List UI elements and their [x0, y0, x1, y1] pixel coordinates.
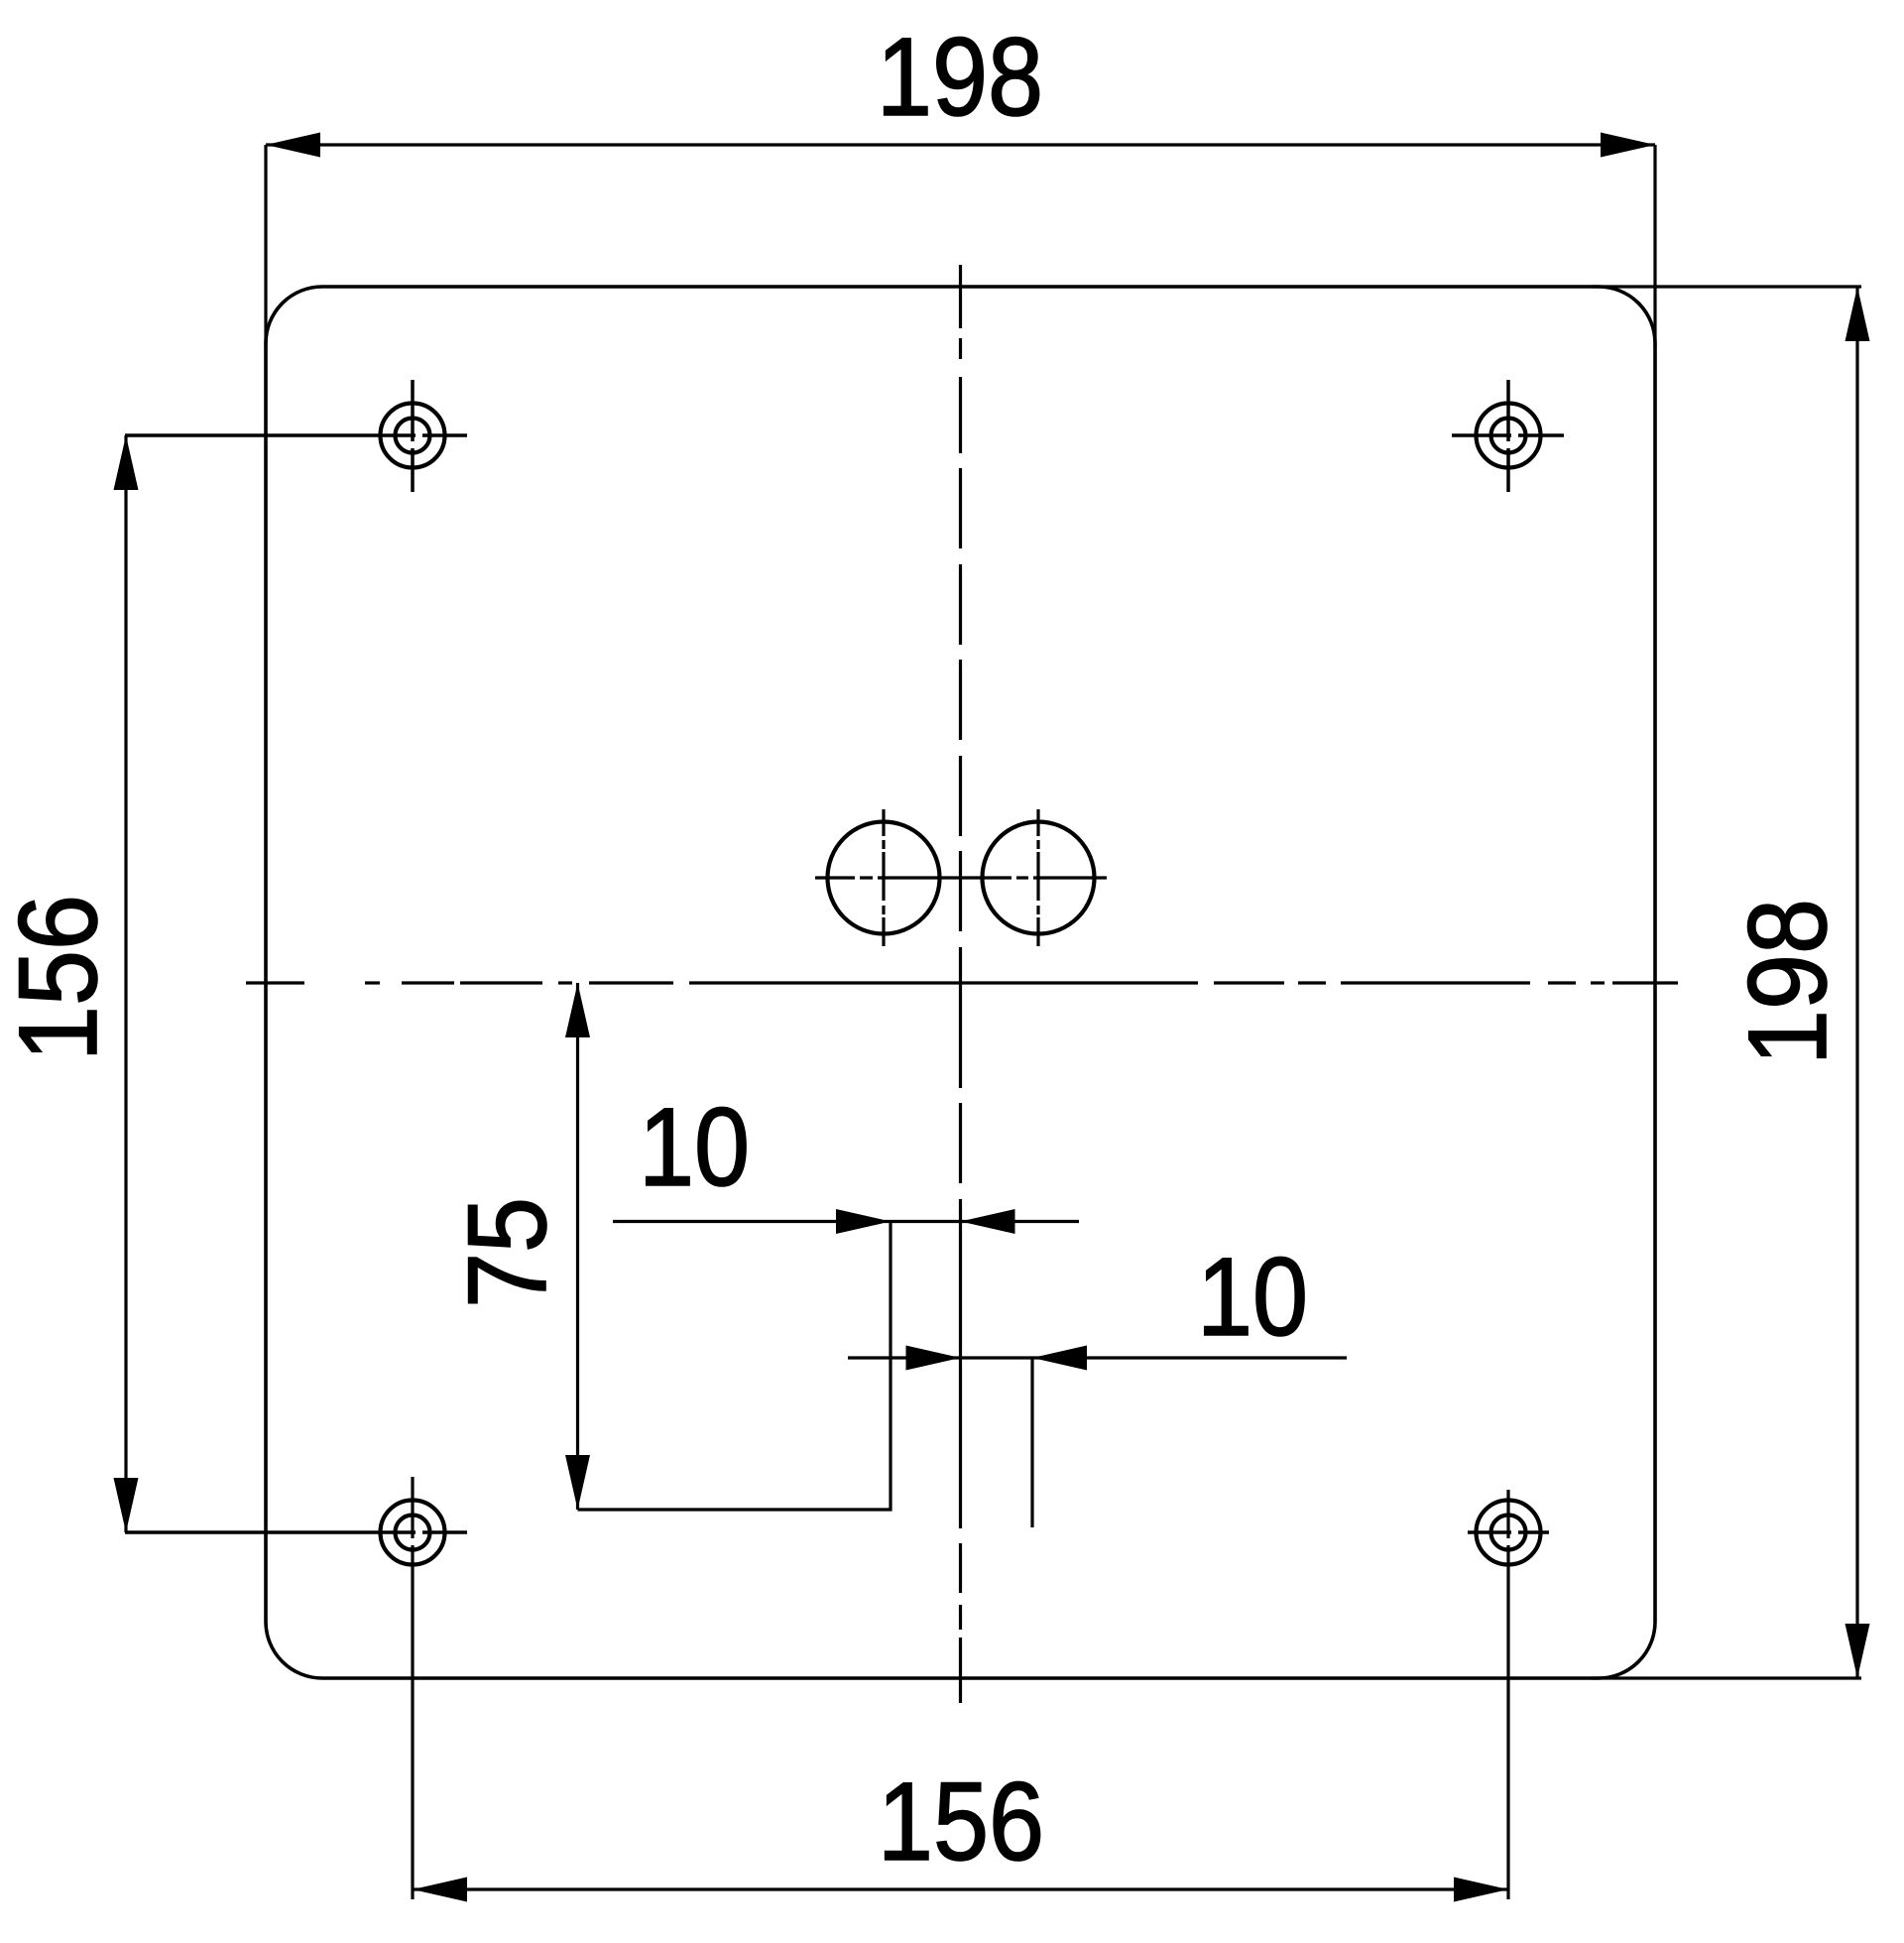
svg-text:75: 75	[445, 1197, 569, 1308]
svg-text:156: 156	[878, 1760, 1044, 1883]
svg-text:198: 198	[877, 15, 1043, 139]
svg-text:10: 10	[1197, 1235, 1308, 1359]
svg-text:10: 10	[639, 1085, 750, 1209]
svg-text:198: 198	[1725, 899, 1849, 1065]
svg-text:156: 156	[0, 895, 120, 1061]
